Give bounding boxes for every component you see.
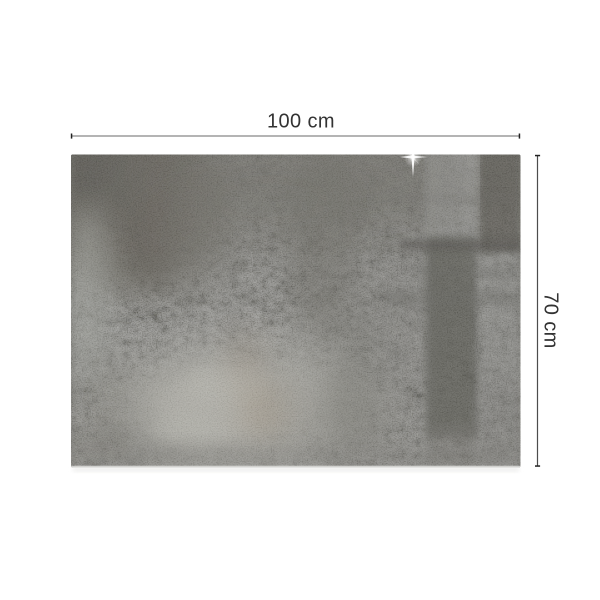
svg-text:100 cm: 100 cm — [267, 111, 335, 133]
svg-text:70 cm: 70 cm — [540, 292, 562, 348]
